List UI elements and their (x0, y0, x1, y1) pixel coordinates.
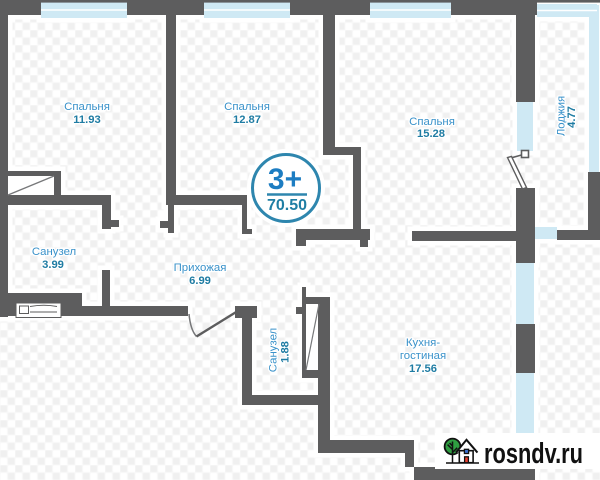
svg-text:Кухня-: Кухня- (406, 337, 440, 349)
svg-text:6.99: 6.99 (189, 275, 211, 287)
svg-text:15.28: 15.28 (417, 128, 445, 140)
svg-text:12.87: 12.87 (233, 114, 261, 126)
svg-text:rosndv.ru: rosndv.ru (484, 438, 583, 470)
svg-text:Санузел: Санузел (32, 246, 76, 258)
svg-text:70.50: 70.50 (267, 197, 307, 214)
svg-text:3+: 3+ (268, 163, 302, 196)
svg-text:3.99: 3.99 (42, 259, 64, 271)
svg-text:1.88: 1.88 (280, 341, 292, 363)
svg-text:Спальня: Спальня (409, 116, 455, 128)
svg-text:17.56: 17.56 (409, 363, 437, 375)
svg-text:11.93: 11.93 (73, 114, 100, 126)
svg-text:Прихожая: Прихожая (174, 262, 227, 274)
svg-text:гостиная: гостиная (400, 350, 446, 362)
svg-text:Спальня: Спальня (64, 101, 110, 113)
svg-text:Спальня: Спальня (224, 101, 270, 113)
svg-text:Санузел: Санузел (268, 328, 280, 372)
svg-text:4.77: 4.77 (566, 106, 578, 128)
